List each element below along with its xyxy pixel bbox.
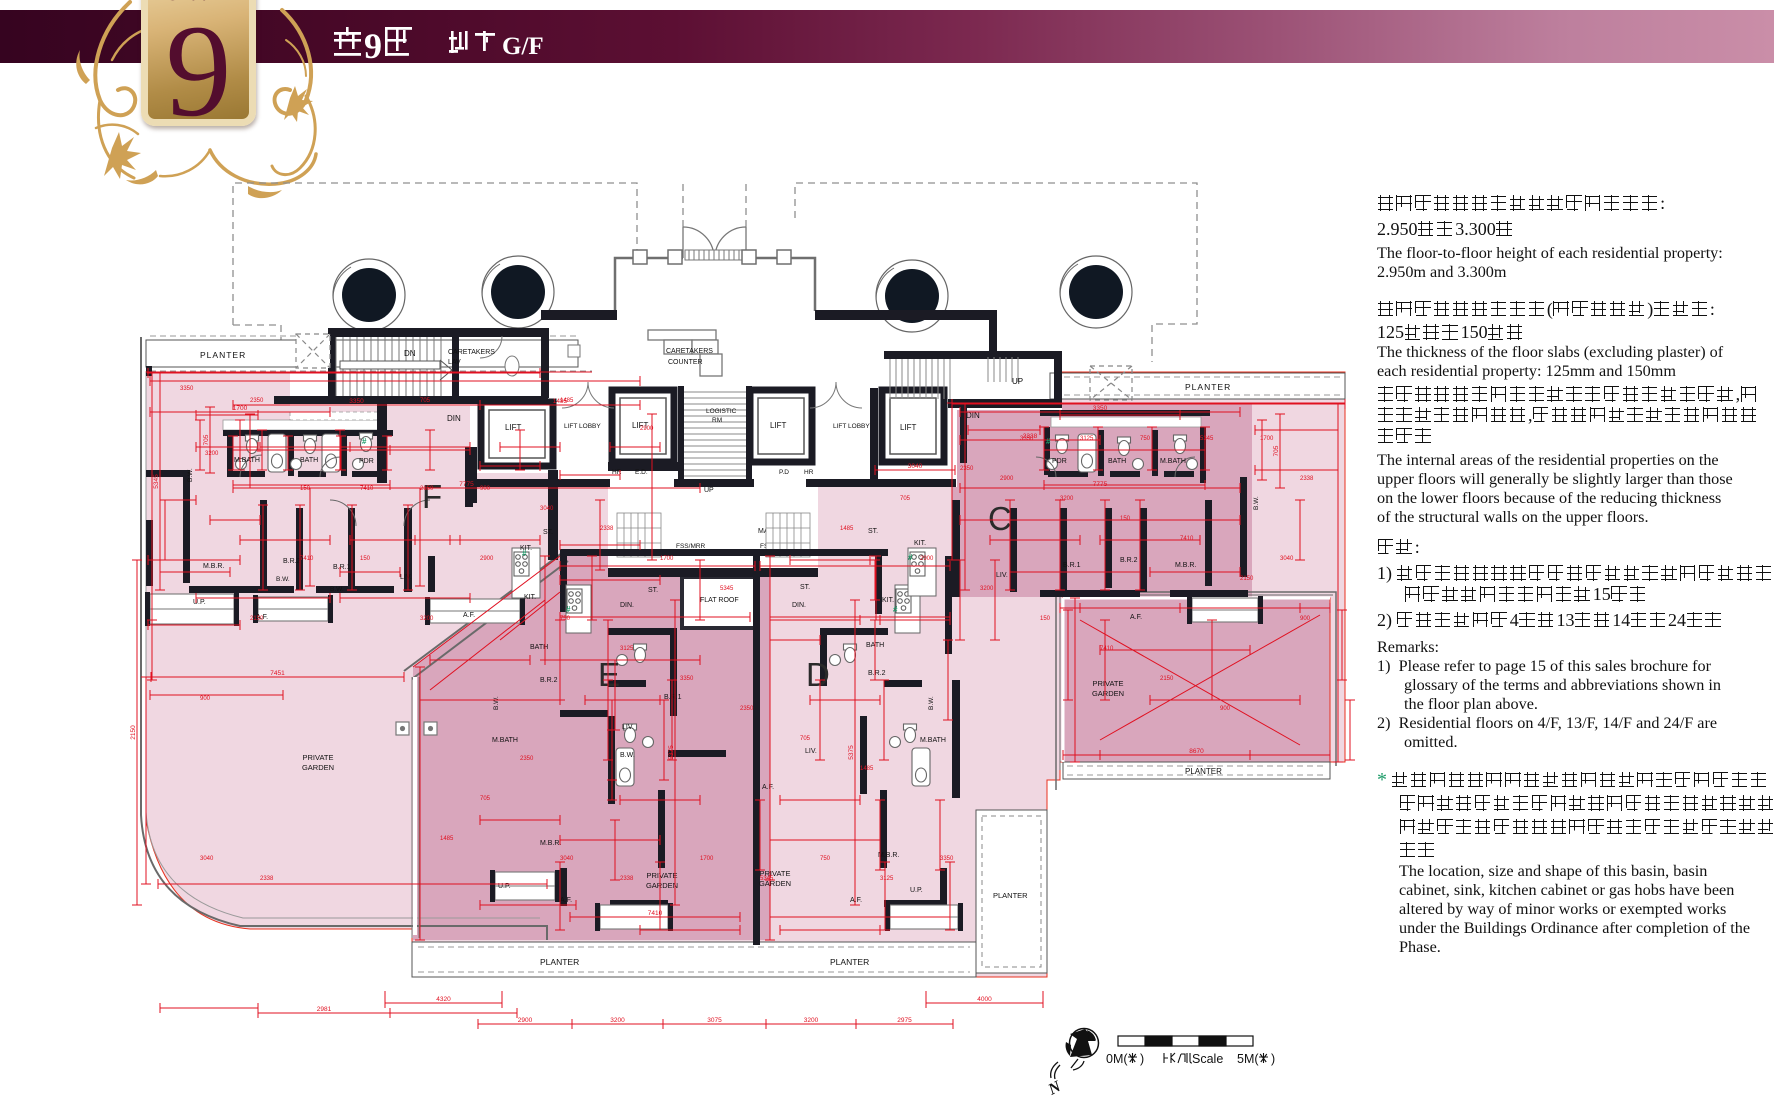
svg-text:150: 150 [1120, 516, 1131, 522]
svg-text:3200: 3200 [420, 616, 434, 622]
svg-text:B.R.2: B.R.2 [283, 558, 301, 565]
svg-text:COUNTER: COUNTER [668, 359, 703, 366]
svg-text:A.F.: A.F. [560, 897, 572, 904]
svg-text:B.R.1: B.R.1 [1063, 562, 1081, 569]
svg-text:3350: 3350 [349, 398, 364, 405]
svg-text:A.F.: A.F. [762, 784, 774, 791]
svg-text:PDR: PDR [359, 458, 374, 465]
svg-text:BATH: BATH [300, 457, 318, 464]
svg-text:1485: 1485 [560, 398, 574, 404]
svg-text:2150: 2150 [1160, 676, 1174, 682]
svg-text:GARDEN: GARDEN [302, 763, 334, 772]
svg-text:2350: 2350 [960, 466, 974, 472]
svg-text:#: # [908, 553, 913, 562]
svg-text:1485: 1485 [860, 766, 874, 772]
svg-text:KIT.: KIT. [914, 540, 926, 547]
svg-text:PRIVATE: PRIVATE [303, 753, 334, 762]
svg-text:FLAT ROOF: FLAT ROOF [700, 597, 739, 604]
svg-text:LIV.: LIV. [622, 724, 634, 731]
svg-text:2150: 2150 [420, 486, 434, 492]
svg-text:LIV.: LIV. [805, 748, 817, 755]
svg-text:A.F.: A.F. [850, 897, 862, 904]
svg-text:1700: 1700 [233, 405, 248, 412]
svg-text:UP: UP [704, 487, 714, 494]
svg-text:2338: 2338 [620, 876, 634, 882]
svg-text:B.R.2: B.R.2 [1120, 557, 1138, 564]
svg-text:2900: 2900 [920, 556, 934, 562]
svg-text:7410: 7410 [360, 486, 374, 492]
svg-text:ST.: ST. [800, 584, 810, 591]
svg-text:PRIVATE: PRIVATE [647, 871, 678, 880]
svg-text:3040: 3040 [540, 506, 554, 512]
svg-text:3040: 3040 [1280, 556, 1294, 562]
svg-text:C: C [988, 500, 1012, 537]
svg-text:3075: 3075 [707, 1017, 722, 1024]
svg-text:E.D.: E.D. [635, 469, 648, 476]
svg-text:3125: 3125 [620, 646, 634, 652]
svg-text:2975: 2975 [897, 1017, 912, 1024]
svg-text:LIFT: LIFT [900, 423, 917, 432]
svg-text:705: 705 [420, 398, 431, 404]
svg-text:PLANTER: PLANTER [540, 957, 579, 967]
svg-text:): ) [1140, 1052, 1144, 1066]
svg-text:A.F.: A.F. [1130, 614, 1142, 621]
svg-text:3125: 3125 [880, 876, 894, 882]
svg-text:3040: 3040 [200, 856, 214, 862]
svg-text:900: 900 [1300, 616, 1311, 622]
svg-text:8670: 8670 [1189, 748, 1204, 755]
svg-text:3200: 3200 [205, 451, 219, 457]
svg-text:4000: 4000 [977, 996, 992, 1003]
svg-text:LIFT LOBBY: LIFT LOBBY [564, 423, 601, 430]
svg-text:#: # [566, 605, 571, 614]
svg-text:2150: 2150 [250, 616, 264, 622]
svg-text:3350: 3350 [1020, 436, 1034, 442]
svg-text:3350: 3350 [680, 676, 694, 682]
svg-text:B.W.: B.W. [330, 586, 344, 593]
svg-text:B.W.: B.W. [187, 468, 194, 482]
svg-text:705: 705 [203, 434, 210, 445]
svg-text:2338: 2338 [600, 526, 614, 532]
svg-text:PRIVATE: PRIVATE [1093, 679, 1124, 688]
svg-text:B.R.2: B.R.2 [868, 670, 886, 677]
svg-text:M.BATH: M.BATH [920, 737, 946, 744]
svg-text:GARDEN: GARDEN [1092, 689, 1124, 698]
svg-text:LAV: LAV [448, 359, 461, 366]
svg-text:DIN: DIN [447, 414, 461, 423]
svg-text:7775: 7775 [459, 481, 474, 488]
svg-text:3200: 3200 [980, 586, 994, 592]
svg-text:150: 150 [1040, 616, 1051, 622]
svg-text:D: D [806, 656, 830, 693]
svg-text:5375: 5375 [848, 745, 855, 760]
svg-text:7410: 7410 [1180, 536, 1194, 542]
svg-text:FSS/MRR: FSS/MRR [676, 543, 706, 550]
svg-text:1485: 1485 [440, 836, 454, 842]
svg-text:2350: 2350 [520, 756, 534, 762]
svg-text:PLANTER: PLANTER [830, 957, 869, 967]
svg-text:150: 150 [360, 556, 371, 562]
svg-text:3125: 3125 [1080, 436, 1094, 442]
svg-text:#: # [1046, 437, 1051, 446]
svg-text:705: 705 [900, 496, 911, 502]
svg-text:2900: 2900 [480, 556, 494, 562]
svg-text:LIV.: LIV. [996, 572, 1008, 579]
svg-text:750: 750 [1140, 436, 1151, 442]
svg-text:2900: 2900 [640, 426, 654, 432]
svg-text:RM: RM [712, 417, 722, 424]
svg-text:705: 705 [1273, 445, 1280, 456]
svg-text:KIT.: KIT. [524, 594, 536, 601]
svg-text:M.BATH: M.BATH [492, 737, 518, 744]
svg-text:A.F.: A.F. [463, 612, 475, 619]
svg-text:Scale: Scale [1192, 1052, 1223, 1066]
svg-text:3040: 3040 [908, 463, 923, 470]
svg-text:PDR: PDR [1052, 458, 1067, 465]
svg-text:LIFT: LIFT [505, 423, 522, 432]
svg-text:M.B.R.: M.B.R. [1175, 562, 1196, 569]
svg-text:KIT.: KIT. [882, 597, 894, 604]
svg-text:HR: HR [804, 469, 814, 476]
svg-text:DIN.: DIN. [620, 602, 634, 609]
svg-text:3350: 3350 [940, 856, 954, 862]
svg-text:M.B.R.: M.B.R. [203, 563, 224, 570]
svg-text:PLANTER: PLANTER [200, 350, 246, 360]
svg-text:GARDEN: GARDEN [646, 881, 678, 890]
svg-text:1700: 1700 [1260, 436, 1274, 442]
svg-text:3040: 3040 [560, 856, 574, 862]
svg-text:ST.: ST. [648, 587, 658, 594]
svg-text:3200: 3200 [804, 1017, 819, 1024]
svg-text:2981: 2981 [317, 1006, 332, 1013]
svg-text:CARETAKERS: CARETAKERS [448, 349, 495, 356]
svg-text:2338: 2338 [1300, 476, 1314, 482]
svg-text:4320: 4320 [436, 996, 451, 1003]
svg-text:LIFT LOBBY: LIFT LOBBY [833, 423, 870, 430]
svg-text:705: 705 [800, 736, 811, 742]
svg-text:2900: 2900 [1000, 476, 1014, 482]
svg-text:UP: UP [1012, 377, 1023, 386]
svg-text:1485: 1485 [840, 526, 854, 532]
svg-text:5345: 5345 [1200, 436, 1214, 442]
svg-text:3200: 3200 [610, 1017, 625, 1024]
svg-text:3350: 3350 [180, 386, 194, 392]
svg-text:#: # [362, 437, 367, 446]
svg-text:2150: 2150 [1240, 576, 1254, 582]
svg-text:B.W.: B.W. [928, 696, 935, 710]
svg-text:U.P.: U.P. [193, 599, 206, 606]
svg-text:BATH: BATH [1108, 458, 1126, 465]
svg-text:E: E [598, 656, 620, 693]
svg-text:5345: 5345 [720, 586, 734, 592]
svg-text:U.P.: U.P. [910, 887, 923, 894]
svg-text:B.W.: B.W. [1253, 496, 1260, 510]
svg-text:150: 150 [300, 486, 311, 492]
svg-text:P.D: P.D [779, 469, 789, 476]
svg-text:M.B.R.: M.B.R. [878, 852, 899, 859]
svg-text:ST.: ST. [868, 528, 878, 535]
svg-text:1700: 1700 [660, 556, 674, 562]
svg-text:B.R.1: B.R.1 [333, 564, 351, 571]
svg-text:DN: DN [404, 349, 416, 358]
svg-text:CARETAKERS: CARETAKERS [666, 348, 713, 355]
svg-text:1700: 1700 [700, 856, 714, 862]
svg-text:2350: 2350 [250, 398, 264, 404]
svg-text:900: 900 [1220, 706, 1231, 712]
svg-text:ST.: ST. [543, 529, 553, 536]
svg-text:5345: 5345 [760, 876, 774, 882]
svg-text:B.W.: B.W. [493, 696, 500, 710]
svg-text:705: 705 [480, 796, 491, 802]
svg-text:PLANTER: PLANTER [1185, 382, 1231, 392]
svg-text:M.BATH: M.BATH [234, 457, 260, 464]
svg-text:2150: 2150 [130, 725, 137, 740]
svg-text:2900: 2900 [518, 1017, 533, 1024]
svg-text:): ) [1271, 1052, 1275, 1066]
svg-text:7410: 7410 [1100, 646, 1114, 652]
svg-text:900: 900 [200, 696, 211, 702]
svg-text:LIFT: LIFT [770, 421, 787, 430]
svg-text:5M(: 5M( [1237, 1052, 1259, 1066]
svg-text:7410: 7410 [300, 556, 314, 562]
svg-text:#: # [522, 549, 527, 558]
svg-text:2350: 2350 [740, 706, 754, 712]
svg-text:7451: 7451 [270, 670, 285, 677]
svg-text:B.R.2: B.R.2 [540, 677, 558, 684]
svg-text:#: # [893, 605, 898, 614]
svg-text:F: F [422, 478, 442, 515]
svg-text:B.W.: B.W. [276, 576, 290, 583]
svg-text:3350: 3350 [1093, 405, 1108, 412]
svg-text:750: 750 [820, 856, 831, 862]
svg-text:LIV.: LIV. [400, 574, 412, 581]
svg-text:LOGISTIC: LOGISTIC [706, 408, 737, 415]
svg-text:5345: 5345 [153, 474, 160, 489]
svg-text:DIN.: DIN. [792, 602, 806, 609]
svg-text:PLANTER: PLANTER [993, 891, 1028, 900]
svg-text:B.W.: B.W. [620, 752, 635, 759]
svg-text:2338: 2338 [260, 876, 274, 882]
svg-text:0M(: 0M( [1106, 1052, 1128, 1066]
svg-text:3200: 3200 [1060, 496, 1074, 502]
svg-text:900: 900 [480, 486, 491, 492]
svg-text:N: N [1045, 1077, 1065, 1099]
svg-text:M.BATH: M.BATH [1160, 458, 1186, 465]
svg-text:M.B.R.: M.B.R. [540, 840, 561, 847]
